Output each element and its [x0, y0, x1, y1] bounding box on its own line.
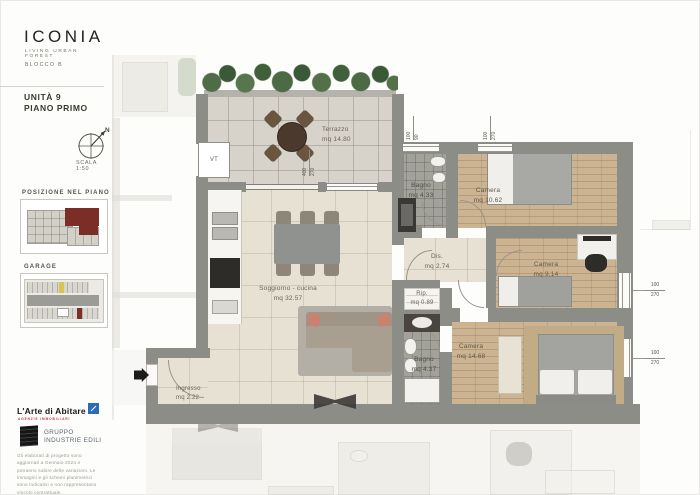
dim-window-right-upper: 100270: [645, 281, 665, 299]
dining-chair: [300, 211, 315, 224]
wall-segment: [446, 226, 458, 238]
wall-bottom: [146, 404, 640, 424]
wall-segment: [146, 348, 210, 358]
garage-stair-box: [57, 308, 69, 317]
window-right-upper: [618, 272, 632, 312]
wall-segment: [404, 280, 440, 288]
toilet: [404, 338, 417, 355]
window-camera-top: [477, 143, 513, 153]
unit-floor: PIANO PRIMO: [24, 103, 88, 113]
sidebar-divider: [0, 86, 104, 87]
dining-chair: [276, 263, 291, 276]
room-label-bagno2: Bagnomq 4.37: [399, 355, 449, 375]
sidebar: ICONIA LIVING URBAN FOREST BLOCCO B UNIT…: [0, 0, 110, 495]
garage-map: [20, 273, 108, 328]
compass-north-label: N: [105, 127, 110, 134]
agency-logo-icon-mark: [91, 406, 97, 412]
brand-logo: ICONIA: [24, 27, 104, 47]
position-highlight-unit-stub: [79, 226, 98, 235]
kitchen-cooktop: [210, 258, 240, 288]
wall-segment: [196, 94, 208, 144]
brand-block-label: BLOCCO B: [25, 62, 63, 68]
garage-lane: [27, 295, 99, 306]
room-label-terrazzo: Terrazzomq 14.80: [322, 125, 351, 145]
shower-tub: [404, 378, 440, 403]
dining-chair: [276, 211, 291, 224]
position-highlight-unit: [65, 208, 99, 226]
dim-leader: [633, 358, 645, 359]
bed-pillow: [499, 277, 518, 306]
vt-label: VT: [199, 156, 229, 165]
dim-sliding-door: 400270: [303, 150, 316, 176]
neighbour-bathroom: [338, 442, 430, 495]
dim-window-bagno-top: 10090: [407, 116, 420, 140]
neighbour-fixture: [350, 450, 368, 462]
neighbour-wardrobe: [268, 486, 334, 495]
dining-table: [274, 224, 340, 264]
desk-chair: [585, 254, 607, 272]
wall-segment: [318, 182, 326, 192]
neighbour-wall-right: [690, 130, 691, 230]
door-arc-camera3: [458, 280, 484, 308]
bed-pillow: [540, 370, 574, 394]
wall-segment: [486, 238, 496, 308]
kitchen-sink: [212, 300, 238, 314]
bed-headboard: [536, 395, 616, 404]
wall-segment: [488, 308, 633, 322]
neighbour-box-right: [652, 220, 690, 230]
terrace-hedge: [202, 62, 398, 96]
dim-leader: [633, 290, 645, 291]
dining-chair: [324, 211, 339, 224]
dining-chair: [324, 263, 339, 276]
agency-logo: L'Arte di Abitare: [17, 406, 86, 416]
room-label-dis: Dis.mq 2.74: [412, 252, 462, 272]
wall-segment: [446, 154, 458, 226]
sofa-pillow: [377, 313, 391, 327]
wall-segment: [146, 386, 158, 404]
bed-pillow: [578, 370, 612, 394]
sofa-chaise: [352, 348, 392, 372]
unit-title: UNITÀ 9: [24, 92, 61, 102]
agency-logo-icon: [88, 403, 99, 414]
vt-room: VT: [198, 142, 230, 178]
neighbour-bed-pillows: [172, 428, 262, 444]
wall-segment: [196, 192, 208, 358]
dim-window-camera-top: 100270: [484, 116, 497, 140]
room-label-camera3: Cameramq 14.68: [445, 342, 497, 362]
neighbour-wall: [112, 118, 120, 348]
floorplan-sheet: ICONIA LIVING URBAN FOREST BLOCCO B UNIT…: [0, 0, 700, 495]
garage-stalls-top: [27, 282, 89, 293]
sofa-seat: [306, 326, 392, 348]
bathroom-sink: [430, 156, 446, 167]
neighbour-plant: [178, 58, 196, 96]
scale-label: SCALA 1:50: [76, 160, 110, 172]
garage-highlight-stall-red: [77, 308, 82, 319]
room-label-ingresso: Ingressomq 2.22: [176, 385, 201, 404]
garage-highlight-stall-yellow: [59, 282, 64, 293]
sliding-glass-door: [246, 184, 318, 190]
kitchen-appliance: [212, 227, 238, 240]
dim-window-right-lower: 100270: [645, 349, 665, 367]
wardrobe: [498, 336, 522, 394]
desk-monitor: [583, 236, 611, 241]
brand-tagline: LIVING URBAN FOREST: [25, 49, 110, 59]
room-label-camera2: Cameramq 9.14: [520, 260, 572, 280]
room-label-soggiorno: Soggiorno - cucinamq 32.57: [243, 284, 333, 304]
dining-chair: [300, 263, 315, 276]
bathroom-sink: [412, 317, 432, 328]
disclaimer-text: Gli elaborati di progetto sono aggiornat…: [17, 452, 101, 495]
group-logo-line2: INDUSTRIE EDILI: [44, 437, 101, 445]
group-logo-icon: [20, 425, 38, 446]
neighbour-chair: [506, 442, 532, 466]
group-logo-line1: GRUPPO: [44, 429, 74, 437]
position-section-title: POSIZIONE NEL PIANO: [22, 190, 110, 196]
washing-machine-door: [401, 204, 413, 226]
neighbour-wall: [112, 195, 172, 201]
agency-tagline: AGENZIE IMMOBILIARI: [18, 417, 70, 421]
garage-section-title: GARAGE: [24, 264, 57, 270]
neighbour-wall: [112, 292, 196, 298]
position-map: [20, 199, 108, 254]
window: [326, 183, 378, 191]
neighbour-table: [122, 62, 168, 112]
room-label-camera1: Cameramq 10.62: [462, 186, 514, 206]
neighbour-table2: [545, 470, 615, 494]
window-bagno-top: [402, 143, 440, 153]
room-label-rip: Rip.mq 0.89: [398, 290, 446, 309]
room-label-bagno1: Bagnomq 4.33: [396, 181, 446, 201]
terrace-table: [277, 122, 307, 152]
sofa-pillow: [307, 313, 321, 327]
kitchen-appliance: [212, 212, 238, 225]
